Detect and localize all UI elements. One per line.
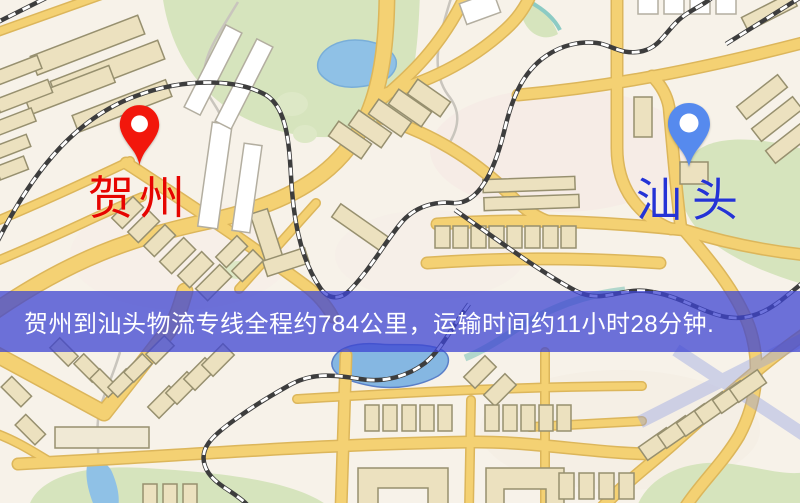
origin-pin-shape bbox=[120, 105, 159, 165]
map-canvas bbox=[0, 0, 800, 503]
map: 贺州 汕头 贺州到汕头物流专线全程约784公里，运输时间约11小时28分钟. bbox=[0, 0, 800, 503]
origin-label: 贺州 bbox=[88, 175, 190, 221]
destination-pin-icon[interactable] bbox=[665, 100, 713, 172]
destination-pin-shape bbox=[668, 103, 710, 167]
origin-pin-icon[interactable] bbox=[117, 101, 162, 171]
route-info-text: 贺州到汕头物流专线全程约784公里，运输时间约11小时28分钟. bbox=[24, 304, 714, 339]
destination-label: 汕头 bbox=[636, 177, 748, 223]
route-info-banner: 贺州到汕头物流专线全程约784公里，运输时间约11小时28分钟. bbox=[0, 291, 800, 352]
